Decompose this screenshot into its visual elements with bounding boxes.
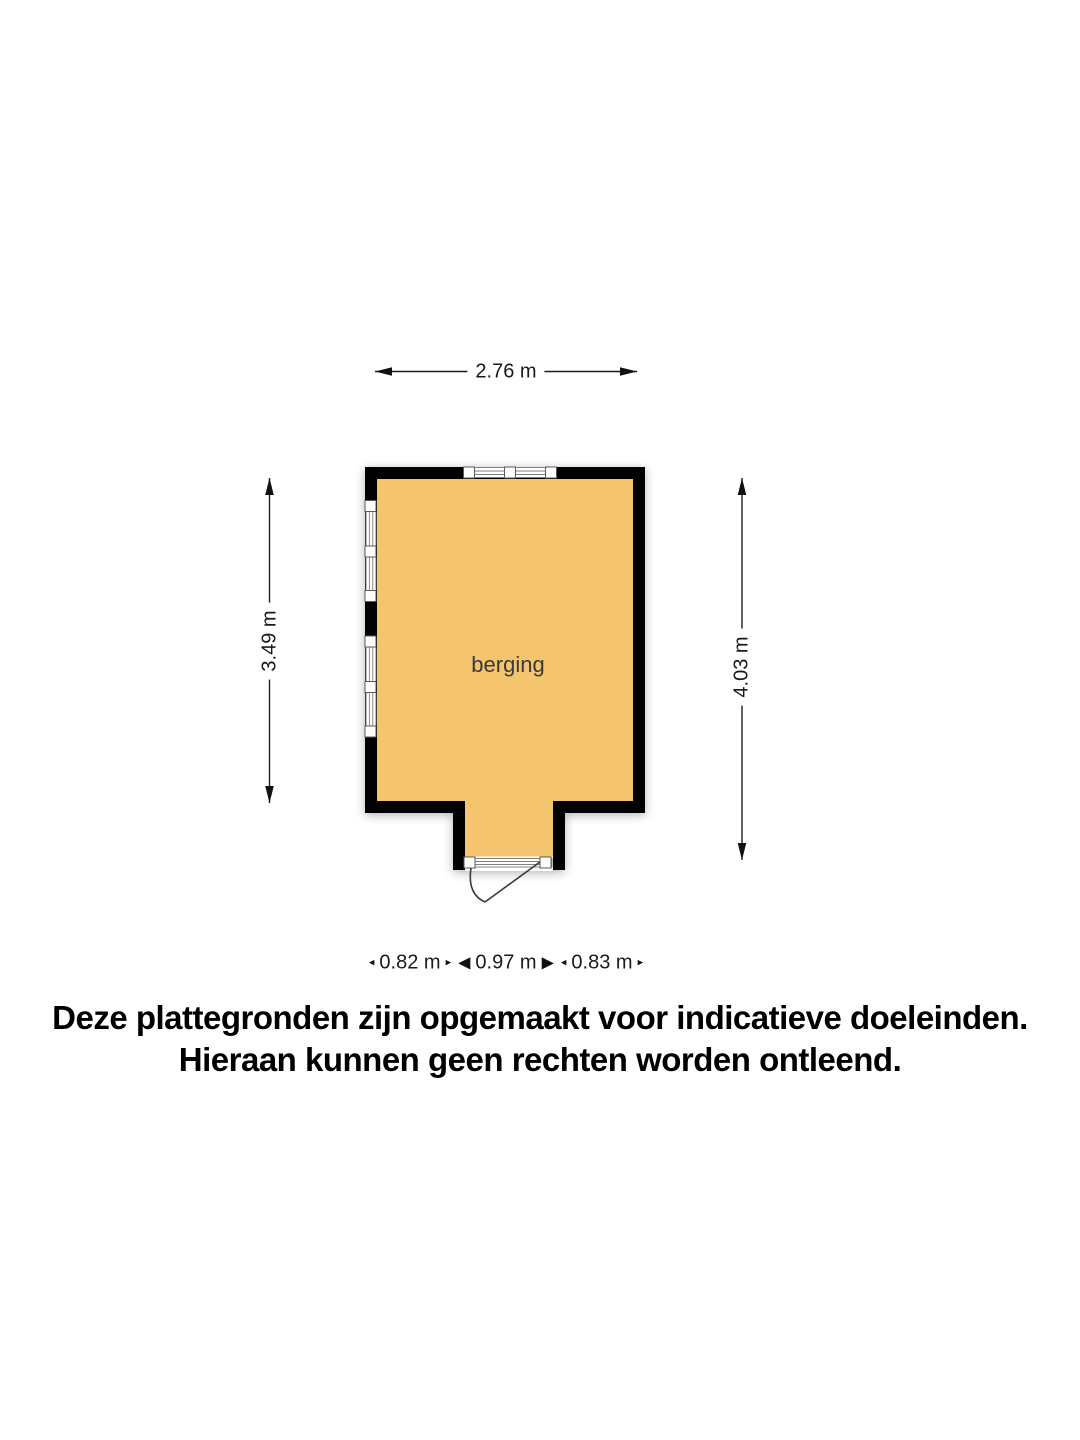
dimension-bottom-row: ◂ 0.82 m ▸ ◀ 0.97 m ▶ ◂ 0.83 m ▸ xyxy=(369,952,643,975)
arrow-left-small-icon: ◂ xyxy=(369,958,375,969)
disclaimer-line-1: Deze plattegronden zijn opgemaakt voor i… xyxy=(0,997,1080,1039)
window-top xyxy=(464,467,557,478)
dimension-right-label: 4.03 m xyxy=(731,628,754,705)
room-label: berging xyxy=(471,652,544,678)
disclaimer-line-2: Hieraan kunnen geen rechten worden ontle… xyxy=(0,1039,1080,1081)
arrow-left-small-icon: ◂ xyxy=(561,958,567,969)
dimension-bottom-2-label: 0.97 m xyxy=(475,952,536,975)
window-left-upper xyxy=(365,501,376,602)
disclaimer: Deze plattegronden zijn opgemaakt voor i… xyxy=(0,997,1080,1081)
door-swing-arc xyxy=(470,868,485,902)
dimension-bottom-segment-1: ◂ 0.82 m ▸ xyxy=(369,952,451,975)
arrow-right-large-icon: ▶ xyxy=(542,955,554,971)
dimension-top-label: 2.76 m xyxy=(467,361,544,384)
floorplan-drawing xyxy=(0,0,1080,1440)
dimension-bottom-segment-2: ◀ 0.97 m ▶ xyxy=(458,952,554,975)
floorplan-page: 2.76 m 3.49 m 4.03 m berging ◂ 0.82 m ▸ … xyxy=(0,0,1080,1440)
window-left-lower xyxy=(365,636,376,737)
dimension-bottom-1-label: 0.82 m xyxy=(379,952,440,975)
arrow-left-large-icon: ◀ xyxy=(458,955,470,971)
arrow-right-small-icon: ▸ xyxy=(446,958,452,969)
dimension-bottom-segment-3: ◂ 0.83 m ▸ xyxy=(561,952,643,975)
arrow-right-small-icon: ▸ xyxy=(638,958,644,969)
dimension-left-label: 3.49 m xyxy=(259,602,282,679)
dimension-bottom-3-label: 0.83 m xyxy=(571,952,632,975)
